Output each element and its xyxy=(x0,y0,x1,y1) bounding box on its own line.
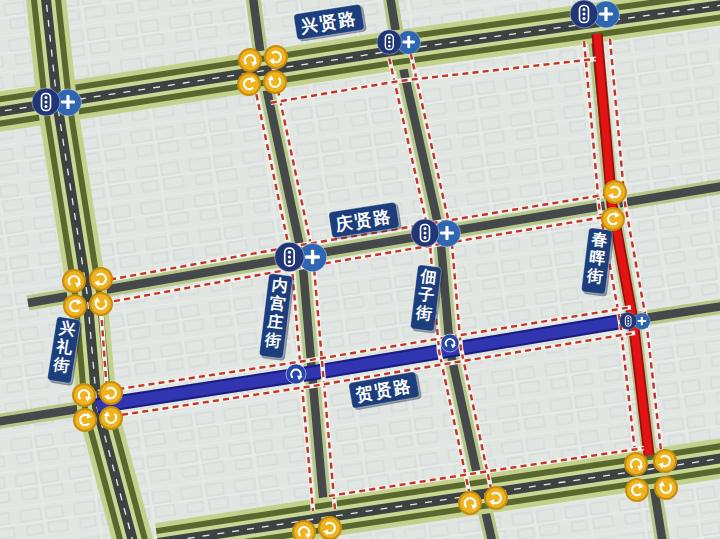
traffic-light-dot xyxy=(583,13,586,16)
detour-arrow-circle xyxy=(286,364,306,384)
traffic-light-dot xyxy=(424,236,427,239)
turn-badge-icon xyxy=(626,479,648,501)
detour-arrow-icon-turn-hexian-neigongzhuang xyxy=(286,364,306,384)
turn-badge-icon xyxy=(604,181,626,203)
turn-badge-icon xyxy=(74,409,96,431)
turn-badge-icon xyxy=(73,384,95,406)
detour-arrow-icon-turn-hexian-dianzi xyxy=(441,334,459,352)
turn-badge-icon xyxy=(100,407,122,429)
plus-glyph xyxy=(641,317,643,326)
turn-badge-icon xyxy=(264,71,286,93)
traffic-light-dot xyxy=(288,260,291,263)
traffic-light-dot xyxy=(627,320,629,322)
traffic-light-dot xyxy=(424,227,427,230)
turn-badge-icon xyxy=(90,268,112,290)
plus-glyph xyxy=(66,95,69,109)
turn-badge-icon xyxy=(90,293,112,315)
traffic-light-dot xyxy=(583,8,586,11)
turn-badge-icon xyxy=(319,517,341,539)
plus-glyph xyxy=(445,226,448,240)
traffic-light-dot xyxy=(45,105,48,108)
turn-badge-icon xyxy=(64,295,86,317)
turn-badge-icon xyxy=(625,453,647,475)
plus-glyph xyxy=(604,7,607,21)
traffic-light-dot xyxy=(388,41,391,44)
turn-badge-icon xyxy=(239,49,261,71)
turn-badge-icon xyxy=(293,521,315,539)
turn-badge-icon xyxy=(238,73,260,95)
traffic-light-dot xyxy=(45,96,48,99)
map-canvas: 兴贤路庆贤路贺贤路兴礼街内宫庄街佃子街春晖街 xyxy=(0,0,720,539)
traffic-light-dot xyxy=(288,251,291,254)
turn-badge-icon xyxy=(265,46,287,68)
turn-badge-icon xyxy=(459,492,481,514)
traffic-light-dot xyxy=(583,17,586,20)
traffic-light-dot xyxy=(627,317,629,319)
traffic-light-dot xyxy=(627,323,629,325)
turn-badge-icon xyxy=(654,450,676,472)
turn-badge-icon xyxy=(485,487,507,509)
turn-badge-icon xyxy=(602,208,624,230)
detour-arrow-circle xyxy=(441,334,459,352)
traffic-light-dot xyxy=(288,255,291,258)
traffic-light-dot xyxy=(388,37,391,40)
traffic-light-dot xyxy=(45,101,48,104)
turn-badge-icon xyxy=(100,382,122,404)
traffic-plan-map: 兴贤路庆贤路贺贤路兴礼街内宫庄街佃子街春晖街 xyxy=(0,0,720,539)
traffic-light-dot xyxy=(424,232,427,235)
plus-glyph xyxy=(407,36,410,48)
turn-badge-icon xyxy=(63,270,85,292)
traffic-light-dot xyxy=(388,45,391,48)
turn-badge-icon xyxy=(655,477,677,499)
plus-glyph xyxy=(311,250,314,265)
